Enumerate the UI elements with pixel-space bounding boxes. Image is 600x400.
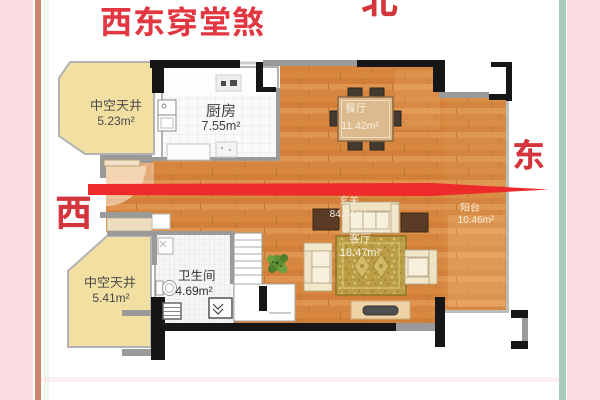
svg-text:18.47m²: 18.47m² [340,247,381,259]
svg-text:84.04m²: 84.04m² [330,209,367,220]
svg-text:4.69m²: 4.69m² [175,284,212,298]
svg-text:7.55m²: 7.55m² [202,119,241,133]
svg-text:11.42m²: 11.42m² [341,120,379,132]
svg-text:5.41m²: 5.41m² [92,291,129,305]
svg-text:10.46m²: 10.46m² [458,215,495,226]
svg-text:5.23m²: 5.23m² [97,114,134,128]
